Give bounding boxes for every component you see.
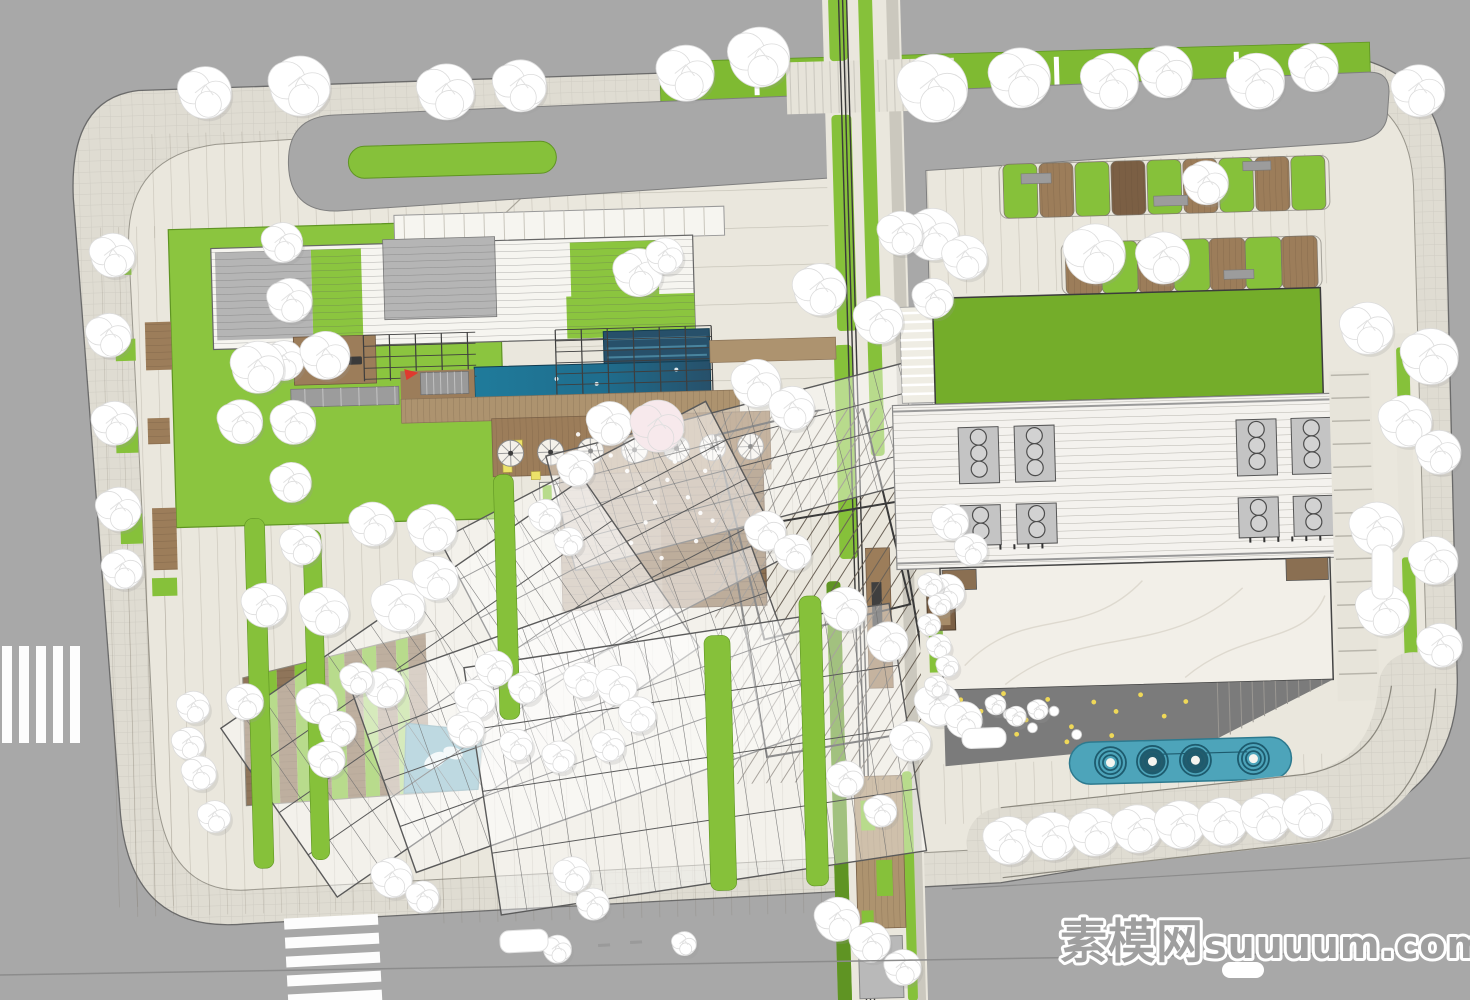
line	[461, 372, 462, 394]
line	[323, 388, 324, 406]
line	[1337, 581, 1375, 582]
line	[1334, 489, 1372, 490]
line	[1338, 650, 1376, 651]
roof-vent	[958, 427, 1000, 484]
crosswalk-bar	[53, 646, 63, 743]
rect	[999, 545, 1001, 550]
line	[901, 348, 934, 349]
finger-planks	[1209, 238, 1246, 291]
crosswalk-bar	[19, 646, 29, 743]
line	[1331, 374, 1369, 375]
finger-cell	[1291, 155, 1326, 210]
crosswalk-bar	[70, 646, 80, 743]
line	[902, 384, 935, 385]
rect	[152, 508, 178, 571]
line	[901, 366, 934, 367]
marble-roof	[940, 557, 1333, 690]
finger-planks	[1039, 162, 1074, 217]
fountain-ring	[1237, 743, 1269, 775]
water-feature	[1069, 737, 1292, 785]
parasol	[497, 440, 524, 467]
roof-vent	[1293, 495, 1334, 536]
stone-bench	[1021, 173, 1051, 184]
watermark-en: suuuum.com	[1204, 923, 1470, 967]
finger-planks	[1111, 160, 1146, 215]
line	[901, 357, 934, 358]
line	[377, 387, 378, 405]
lane-dash	[630, 940, 642, 944]
rect	[1013, 544, 1015, 549]
boardwalk-planting	[876, 860, 893, 896]
roof-vent	[1014, 425, 1056, 482]
line	[900, 321, 933, 322]
stone-bench	[1154, 195, 1188, 206]
rect	[1263, 537, 1265, 542]
line	[454, 372, 455, 394]
lane-dash	[598, 943, 610, 947]
finger-cell	[1245, 237, 1282, 290]
line	[426, 373, 427, 395]
fountain-ring	[1180, 744, 1212, 776]
greenway-planting	[828, 0, 848, 61]
crosswalk-bar	[2, 646, 12, 743]
line	[341, 388, 342, 406]
line	[901, 339, 934, 340]
line	[1336, 558, 1374, 559]
crosswalk-bar	[36, 646, 46, 743]
watermark-cn: 素模网	[1060, 915, 1204, 970]
rect	[1305, 536, 1307, 541]
hedge-tick	[1054, 57, 1060, 87]
rect	[1291, 536, 1293, 541]
roof-vent	[1016, 503, 1057, 544]
line	[1287, 681, 1288, 704]
line	[447, 372, 448, 394]
stone-bench	[1224, 269, 1254, 279]
rect	[1249, 538, 1251, 543]
line	[902, 393, 935, 394]
line	[440, 372, 441, 394]
wood-path	[710, 337, 837, 363]
car	[962, 727, 1007, 749]
finger-planks	[1281, 236, 1318, 289]
line	[1332, 420, 1370, 421]
line	[1333, 443, 1371, 444]
rect	[1027, 544, 1029, 549]
road-median-green	[348, 141, 557, 179]
watermark: 素模网 suuuum.com	[1060, 915, 1470, 970]
street-planting	[152, 578, 177, 597]
rect	[1319, 536, 1321, 541]
finger-cell	[1075, 161, 1110, 216]
rect	[1277, 537, 1279, 542]
green-roof	[932, 288, 1323, 405]
stone-bench	[1243, 161, 1271, 171]
line	[359, 387, 360, 405]
roof-vent	[1236, 419, 1278, 476]
stone-path	[291, 386, 399, 407]
finger-cell	[1003, 163, 1038, 218]
roof-vent	[1291, 417, 1333, 474]
rect	[1041, 543, 1043, 548]
cafe-table	[1072, 729, 1082, 739]
cafe-table	[1027, 723, 1037, 733]
line	[900, 330, 933, 331]
fountain-ring	[1137, 746, 1169, 778]
yellow-seat	[531, 471, 540, 479]
car	[499, 929, 548, 953]
roof-terrace-wood	[1286, 557, 1329, 580]
car	[1372, 545, 1393, 599]
roof-vent	[1238, 497, 1279, 538]
line	[1333, 466, 1371, 467]
site-plan-screenshot: 素模网 suuuum.com	[0, 0, 1470, 1000]
rect	[147, 418, 170, 445]
line	[395, 386, 396, 404]
rect	[145, 322, 172, 371]
line	[1331, 397, 1369, 398]
fountain-ring	[1095, 747, 1127, 779]
site-plan-canvas: 素模网 suuuum.com	[0, 0, 1470, 1000]
line	[902, 375, 935, 376]
line	[433, 372, 434, 394]
line	[1339, 673, 1377, 674]
